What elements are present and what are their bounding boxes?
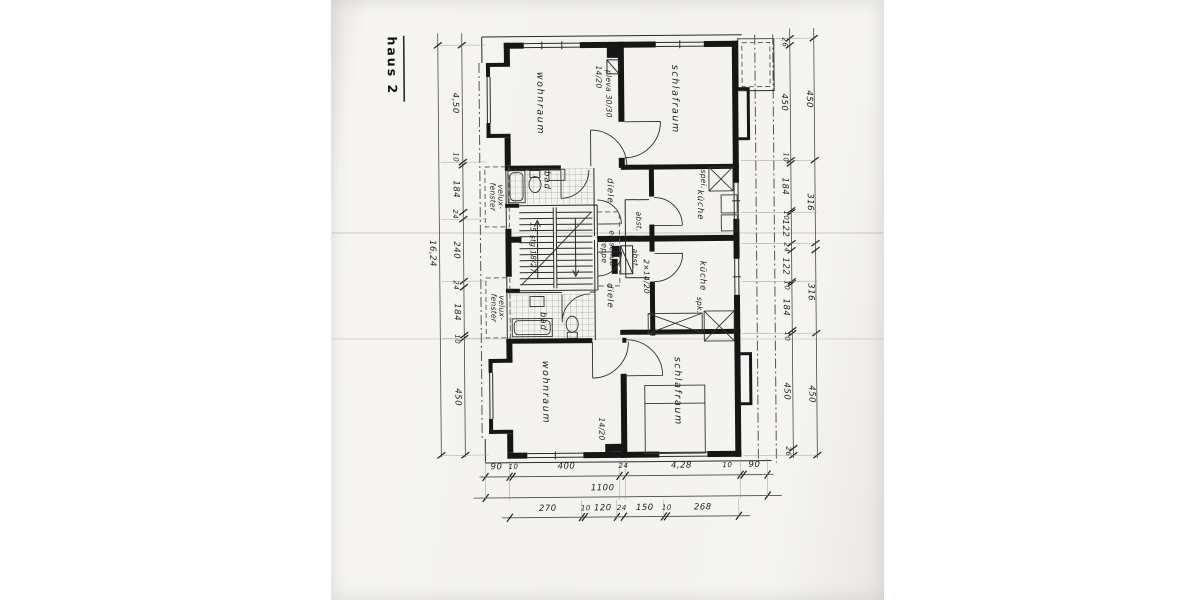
dim-label: 122 xyxy=(780,257,789,275)
dim-label: 90 xyxy=(748,461,760,470)
dim-label: 450 xyxy=(452,388,461,406)
room-label-bad-top: bad xyxy=(541,171,551,190)
dim-label: 268 xyxy=(694,503,712,512)
label-spk: spk. xyxy=(695,297,703,314)
label-spei: spei. xyxy=(699,169,707,188)
chimney-note-top-2: pleva 30/30 xyxy=(604,70,613,118)
room-label-wohnraum-top: wohnraum xyxy=(534,72,545,136)
dim-label: 24 xyxy=(618,463,628,471)
dim-label: 10 xyxy=(508,464,518,472)
dim-label: 400 xyxy=(558,463,576,472)
dim-label: 450 xyxy=(804,90,813,108)
room-label-wohnraum-bottom: wohnraum xyxy=(539,361,550,425)
chimney-note-bottom: 14/20 xyxy=(597,417,605,440)
dim-label: 184 xyxy=(451,303,460,321)
dim-label: 184 xyxy=(779,177,788,195)
dim-label: 1100 xyxy=(591,484,615,494)
room-label-schlafraum-top: schlafraum xyxy=(669,65,680,134)
dim-label: 270 xyxy=(539,505,557,514)
label-velux-fenster-2: velux- fenster xyxy=(489,290,506,326)
dim-label: 10 xyxy=(722,462,732,470)
scanned-floor-plan-page: haus 2 wohnraum schlafraum küche diele b… xyxy=(0,0,1200,600)
room-label-abst-bottom: abst. xyxy=(630,249,638,269)
labels-layer: haus 2 wohnraum schlafraum küche diele b… xyxy=(0,0,1200,600)
room-label-schlafraum-bottom: schlafraum xyxy=(671,357,682,426)
dim-label: 450 xyxy=(779,93,788,111)
stairs-note: 15 stg 18/27 xyxy=(528,222,537,273)
dim-label: 10 xyxy=(452,334,460,344)
dim-label: 316 xyxy=(804,193,813,211)
dim-label: 316 xyxy=(805,283,814,301)
dim-label: 24 xyxy=(450,209,458,219)
label-velux-fenster-1: velux- fenster xyxy=(488,179,505,215)
dim-label: 10 xyxy=(782,280,790,290)
dim-label: 450 xyxy=(806,385,815,403)
dim-label: 450 xyxy=(781,382,790,400)
dim-label: 10 xyxy=(662,505,672,513)
room-label-abst-top: abst. xyxy=(634,212,642,232)
dim-label: 184 xyxy=(450,180,459,198)
dim-label: 10 xyxy=(782,331,790,341)
dim-label: 122 xyxy=(780,219,789,237)
chimney-note-mid: 2×14/20 xyxy=(642,259,651,294)
sheet-title: haus 2 xyxy=(385,36,399,95)
dim-label: 16,24 xyxy=(427,240,437,267)
floor-plan: haus 2 wohnraum schlafraum küche diele b… xyxy=(0,0,1200,600)
dim-label: 24 xyxy=(782,242,790,252)
dim-label: 26 xyxy=(783,446,791,456)
room-label-kueche-top: küche xyxy=(694,190,704,221)
room-label-kueche-bottom: küche xyxy=(697,261,707,292)
dim-label: 24 xyxy=(451,280,459,290)
label-einschubtreppe: einschub- treppe xyxy=(599,226,616,274)
room-label-diele-top: diele xyxy=(604,178,614,204)
dim-label: 240 xyxy=(451,241,460,259)
dim-label: 24 xyxy=(617,505,627,513)
dim-label: 10 xyxy=(781,152,789,162)
dim-label: 90 xyxy=(491,463,503,472)
chimney-note-top-1: 14/20 xyxy=(594,65,602,88)
dim-label: 4,28 xyxy=(671,462,692,472)
dim-label: 120 xyxy=(594,504,612,513)
room-label-diele-bottom: diele xyxy=(604,283,614,309)
dim-label: 184 xyxy=(780,298,789,316)
room-label-bad-bottom: bad xyxy=(537,312,547,331)
dim-label: 26 xyxy=(780,37,788,47)
dim-label: 150 xyxy=(636,504,654,513)
dim-label: 10 xyxy=(451,152,459,162)
dim-label: 10 xyxy=(581,505,591,513)
dim-label: 4,50 xyxy=(450,93,460,114)
